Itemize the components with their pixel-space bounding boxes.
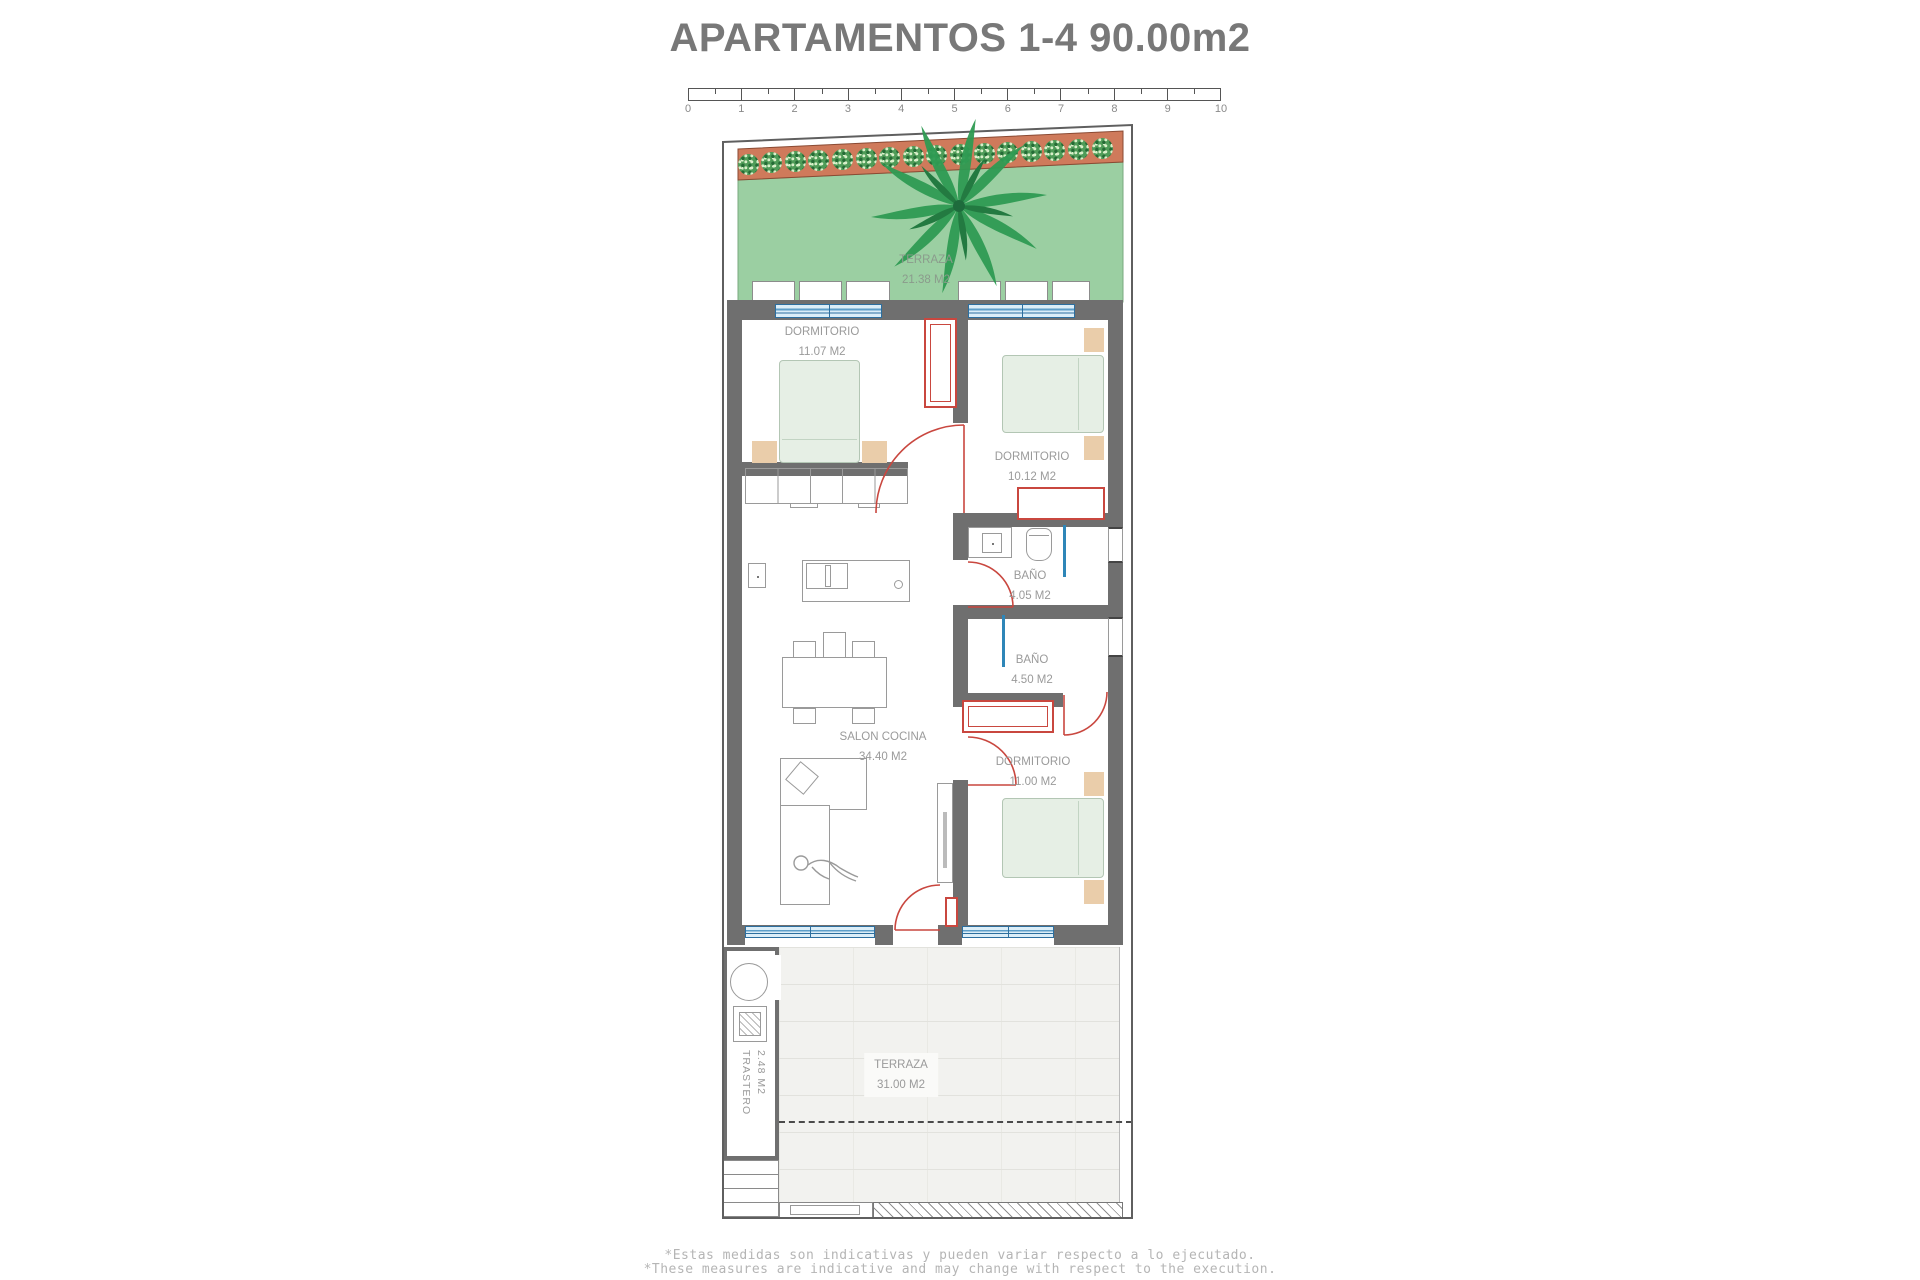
label-terraza-bottom: TERRAZA 31.00 M2 bbox=[864, 1053, 938, 1097]
label-salon-cocina: SALON COCINA 34.40 M2 bbox=[840, 727, 927, 767]
door-terrace-icon bbox=[895, 885, 940, 930]
door-hall-icon bbox=[876, 425, 964, 513]
footnote-es: *Estas medidas son indicativas y pueden … bbox=[0, 1248, 1920, 1263]
person-icon bbox=[794, 856, 858, 881]
label-dormitorio2: DORMITORIO 10.12 M2 bbox=[995, 447, 1070, 487]
door-bath1-icon bbox=[968, 562, 1013, 607]
label-dormitorio3: DORMITORIO 11.00 M2 bbox=[996, 752, 1071, 792]
palm-tree-icon bbox=[871, 118, 1047, 294]
overlay-layer bbox=[0, 0, 1920, 1280]
label-bano2: BAÑO 4.50 M2 bbox=[1011, 650, 1053, 690]
footnote-en: *These measures are indicative and may c… bbox=[0, 1262, 1920, 1277]
label-bano1: BAÑO 4.05 M2 bbox=[1009, 566, 1051, 606]
label-dormitorio1: DORMITORIO 11.07 M2 bbox=[785, 322, 860, 362]
door-swings bbox=[876, 425, 1107, 930]
label-terraza-top: TERRAZA 21.38 M2 bbox=[899, 250, 953, 290]
label-trastero: 2.48 M2 TRASTERO bbox=[738, 1050, 768, 1160]
floor-plan-canvas: APARTAMENTOS 1-4 90.00m2 012345678910 bbox=[0, 0, 1920, 1280]
door-bath2-icon bbox=[1064, 692, 1107, 735]
